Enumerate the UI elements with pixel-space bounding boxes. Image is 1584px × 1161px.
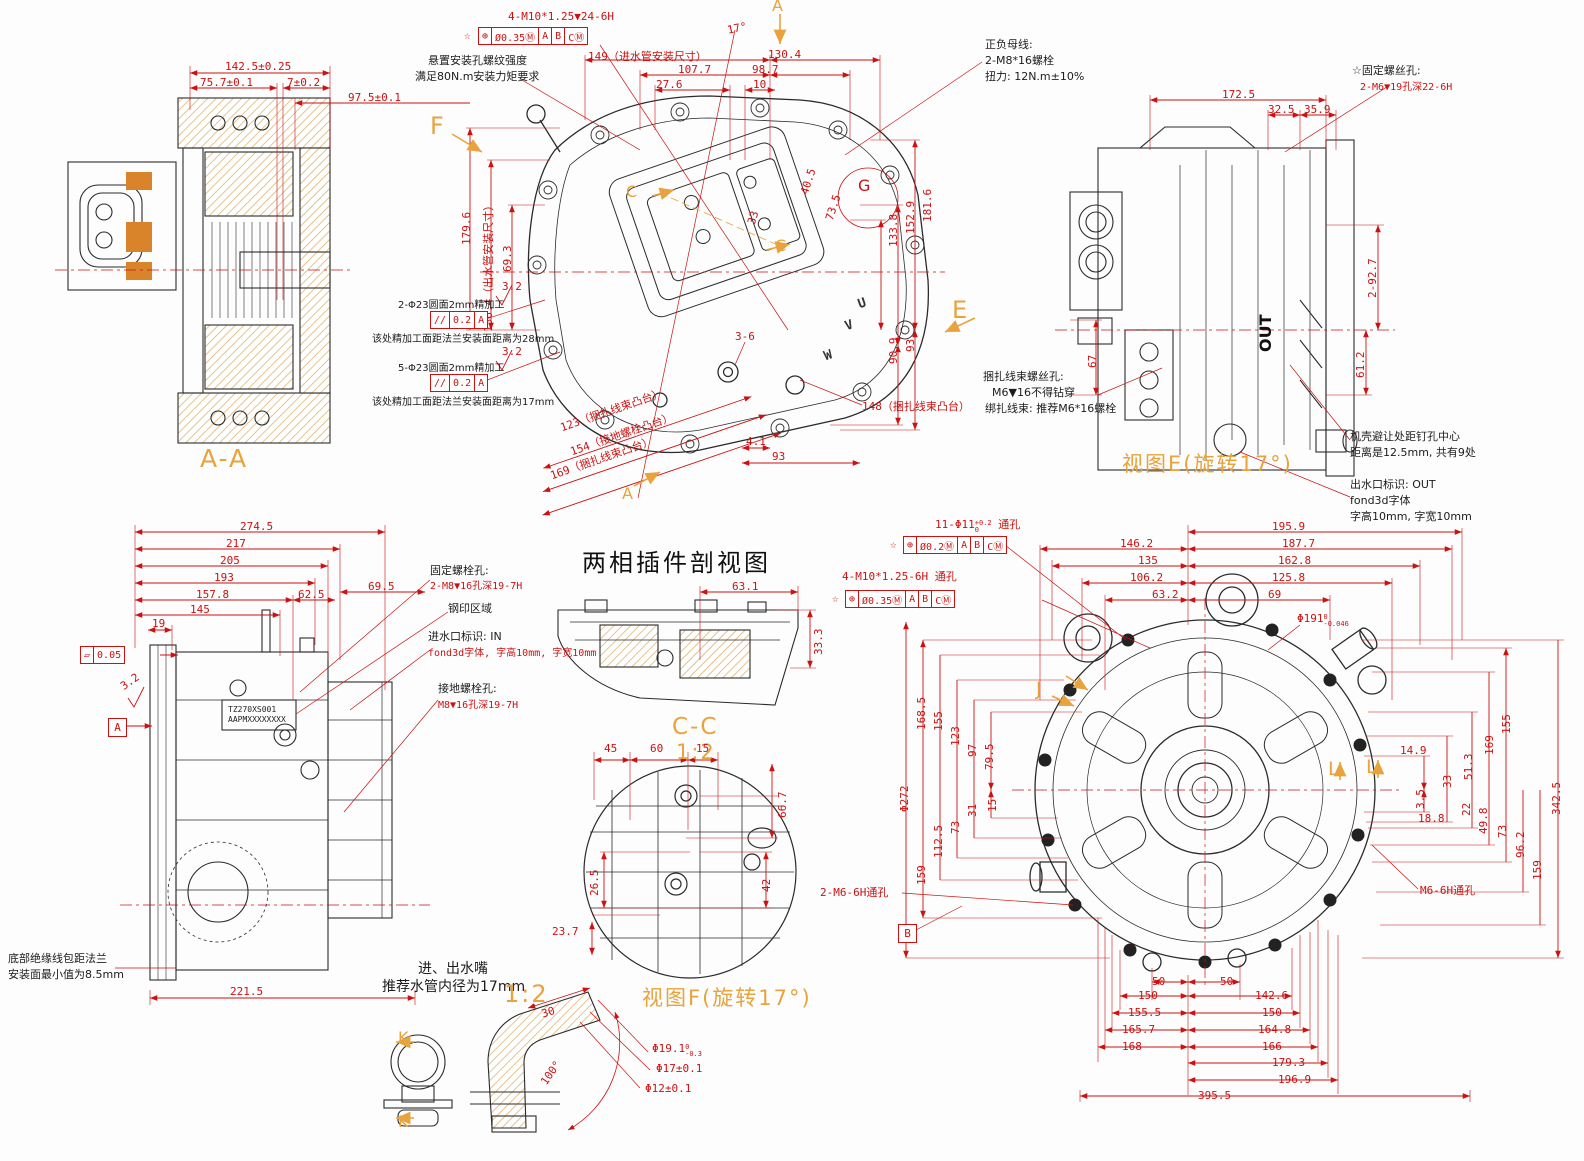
aa-dim-total: 142.5±0.25 xyxy=(225,60,291,73)
mv-par2-datum: A xyxy=(475,375,487,391)
rv-dim-272: Φ272 xyxy=(898,786,911,813)
vf-dim-15: 15 xyxy=(696,742,709,755)
engineering-drawing-sheet: 142.5±0.25 75.7±0.1 7±0.2 97.5±0.1 A-A 4… xyxy=(0,0,1584,1161)
rv-gdt2-star: ☆ xyxy=(890,538,897,551)
ve-note-fix-2: 2-M6▼19孔深22-6H xyxy=(1360,78,1452,93)
view-f-dims xyxy=(592,752,778,955)
rv-gdt3-d1: A xyxy=(906,591,919,607)
rv-dim-165-7: 165.7 xyxy=(1122,1023,1155,1036)
mv-section-a-top: A xyxy=(772,0,785,15)
sv-dim-157-8: 157.8 xyxy=(196,588,229,601)
mv-detail-g: G xyxy=(858,176,870,195)
view-main-dims xyxy=(430,30,982,515)
mv-rough-2: 3.2 xyxy=(502,345,522,358)
mv-dim-98-7: 98.7 xyxy=(752,63,779,76)
ve-note-out-1: 出水口标识: OUT xyxy=(1350,476,1436,492)
rv-dim-191-lo: -0.046 xyxy=(1324,621,1349,628)
rv-gdt3-frame: ⊕Ø0.35ⓂABCⓂ xyxy=(845,590,955,608)
sv-dim-221-5: 221.5 xyxy=(230,985,263,998)
mv-gdt-tol: Ø0.35Ⓜ xyxy=(492,28,539,44)
view-nozzle-linework xyxy=(384,992,600,1132)
ve-note-bundle-1: 捆扎线束螺丝孔: xyxy=(983,368,1064,384)
rv-view-arrow-l1: L xyxy=(1328,758,1339,780)
mv-dim-10: 10 xyxy=(753,78,766,91)
ve-dim-67: 67 xyxy=(1086,355,1099,368)
rv-dim-112-5: 112.5 xyxy=(932,825,945,858)
mv-dim-181-6: 181.6 xyxy=(921,189,934,222)
rv-dim-155-r: 155 xyxy=(1500,714,1513,734)
ve-note-avoid-2: 距离是12.5mm, 共有9处 xyxy=(1350,444,1476,460)
sv-note-ground-1: 接地螺栓孔: xyxy=(438,680,497,696)
view-nozzle-k-arrows xyxy=(396,1042,414,1118)
rv-dim-96-2: 96.2 xyxy=(1514,832,1527,859)
sv-dim-69-5: 69.5 xyxy=(368,580,395,593)
ve-dim-35-9: 35.9 xyxy=(1304,103,1331,116)
rv-dim-125-8: 125.8 xyxy=(1272,571,1305,584)
sv-dim-217: 217 xyxy=(226,537,246,550)
rv-gdt3-star: ☆ xyxy=(832,592,839,605)
rv-dim-135: 135 xyxy=(1138,554,1158,567)
rv-note-2m6: 2-M6-6H通孔 xyxy=(820,884,888,900)
mv-parallel-frame-2: //0.2A xyxy=(430,374,488,392)
rv-gdt3-d3: CⓂ xyxy=(932,591,954,607)
mv-dim-152-9: 152.9 xyxy=(904,201,917,234)
sv-note-in-1: 进水口标识: IN xyxy=(428,628,502,644)
sv-note-fix-1: 固定螺栓孔: xyxy=(430,562,489,578)
vf-view-label: 视图F(旋转17°) xyxy=(642,982,812,1012)
mv-dim-3-6: 3-6 xyxy=(735,330,755,343)
rv-dim-50a: 50 xyxy=(1152,975,1165,988)
nz-k-top: K xyxy=(398,1028,409,1047)
aa-view-label: A-A xyxy=(200,444,248,473)
view-side-linework xyxy=(150,610,392,980)
rv-dim-162-8: 162.8 xyxy=(1278,554,1311,567)
mv-section-c2: C xyxy=(775,236,786,255)
rv-dim-191: Φ1910-0.046 xyxy=(1297,612,1349,628)
sv-dim-193: 193 xyxy=(214,571,234,584)
sv-flat-sym: ▱ xyxy=(81,647,94,663)
rv-dim-33: 33 xyxy=(1441,775,1454,788)
rv-dim-155-l: 155 xyxy=(932,711,945,731)
rv-dim-191-base: Φ191 xyxy=(1297,612,1324,625)
rv-gdt2-d2: B xyxy=(971,537,984,553)
mv-gdt-d3: CⓂ xyxy=(565,28,587,44)
rv-dim-106-2: 106.2 xyxy=(1130,571,1163,584)
rv-dim-168-5: 168.5 xyxy=(915,697,928,730)
rv-dim-50b: 50 xyxy=(1220,975,1233,988)
vf-dim-23-7: 23.7 xyxy=(552,925,579,938)
rv-dim-69: 69 xyxy=(1268,588,1281,601)
ve-dim-61-2: 61.2 xyxy=(1354,352,1367,379)
mv-note-mach1b: 该处精加工面距法兰安装面距离为28mm xyxy=(372,330,554,345)
nz-dim-12: Φ12±0.1 xyxy=(645,1082,691,1095)
sv-dim-205: 205 xyxy=(220,554,240,567)
rv-dim-195-9: 195.9 xyxy=(1272,520,1305,533)
mv-dim-27-6: 27.6 xyxy=(656,78,683,91)
mv-gdt-d1: A xyxy=(539,28,552,44)
rv-note-4holes: 4-M10*1.25-6H 通孔 xyxy=(842,568,957,584)
rv-dim-166: 166 xyxy=(1262,1040,1282,1053)
ve-dim-2-92-7: 2-92.7 xyxy=(1366,258,1379,298)
ve-note-fix-1: ☆固定螺丝孔: xyxy=(1352,62,1421,78)
rv-datum-b-letter: B xyxy=(904,927,911,940)
sv-flat-tol: 0.05 xyxy=(94,647,124,663)
mv-note-suspension-1: 悬置安装孔螺纹强度 xyxy=(428,52,527,68)
rv-dim-155-5: 155.5 xyxy=(1128,1006,1161,1019)
sv-note-bottom-2: 安装面最小值为8.5mm xyxy=(8,966,124,982)
nz-dim-19-1-lo: -0.3 xyxy=(685,1051,702,1058)
rv-dim-3-5: 3.5 xyxy=(1414,789,1427,809)
mv-note-busbar-3: 扭力: 12N.m±10% xyxy=(985,68,1084,84)
mv-gdt-frame: ⊕Ø0.35ⓂABCⓂ xyxy=(478,27,588,45)
rv-gdt3-d2: B xyxy=(919,591,932,607)
mv-gdt-star: ☆ xyxy=(464,29,471,42)
mv-note-busbar-1: 正负母线: xyxy=(985,36,1033,52)
rv-dim-31: 31 xyxy=(966,804,979,817)
rv-dim-142-6: 142.6 xyxy=(1255,989,1288,1002)
sv-nameplate-line1: TZ270XS001 xyxy=(228,705,276,714)
mv-dim-water-in: 149（进水管安装尺寸） xyxy=(588,48,707,64)
rv-dim-179-3: 179.3 xyxy=(1272,1056,1305,1069)
mv-section-a-bottom: A xyxy=(622,484,635,503)
rv-dim-164-8: 164.8 xyxy=(1258,1023,1291,1036)
rv-gdt2-d3: CⓂ xyxy=(984,537,1006,553)
nz-dim-17: Φ17±0.1 xyxy=(656,1062,702,1075)
mv-note-mach2b: 该处精加工面距法兰安装面距离为17mm xyxy=(372,393,554,408)
rv-dim-14-9: 14.9 xyxy=(1400,744,1427,757)
rv-dim-123: 123 xyxy=(949,726,962,746)
mv-view-arrow-f: F xyxy=(430,112,446,140)
sv-note-in-2: fond3d字体, 字高10mm, 字宽10mm xyxy=(428,644,596,659)
cc-dim-33-3: 33.3 xyxy=(812,629,825,656)
mv-dim-boss148: 148（捆扎线束凸台） xyxy=(862,398,970,414)
mv-note-suspension-2: 满足80N.m安装力矩要求 xyxy=(415,68,539,84)
aa-dim-right: 7±0.2 xyxy=(287,76,320,89)
aa-dim-depth: 97.5±0.1 xyxy=(348,91,401,104)
rv-dim-150b: 150 xyxy=(1262,1006,1282,1019)
rv-dim-73-r: 73 xyxy=(1496,825,1509,838)
rv-gdt2-frame: ⊕Ø0.2ⓂABCⓂ xyxy=(903,536,1007,554)
rv-datum-b: B xyxy=(898,924,917,943)
view-f-linework xyxy=(584,766,796,978)
rv-gdt2-tol: Ø0.2Ⓜ xyxy=(917,537,958,553)
ve-dim-172-5: 172.5 xyxy=(1222,88,1255,101)
nz-scale: 1:2 xyxy=(504,980,549,1008)
rv-gdt3-sym: ⊕ xyxy=(846,591,859,607)
vf-dim-26-5: 26.5 xyxy=(588,870,601,897)
rv-dim-146-2: 146.2 xyxy=(1120,537,1153,550)
sv-note-ground-2: M8▼16孔深19-7H xyxy=(438,696,518,711)
rv-dim-18-8: 18.8 xyxy=(1418,812,1445,825)
nz-dim-19-1-base: Φ19.1 xyxy=(652,1042,685,1055)
mv-dim-69-3: 69.3 xyxy=(501,246,514,273)
rv-dim-73-l: 73 xyxy=(949,821,962,834)
rv-gdt2-sym: ⊕ xyxy=(904,537,917,553)
mv-gdt-d2: B xyxy=(552,28,565,44)
nz-k-bottom: K xyxy=(398,1112,409,1131)
mv-section-c1: C xyxy=(626,182,637,201)
rv-dim-79-5: 79.5 xyxy=(983,744,996,771)
ve-note-out-3: 字高10mm, 字宽10mm xyxy=(1350,508,1472,524)
mv-dim-93-right: 93 xyxy=(904,339,917,352)
mv-par2-sym: // xyxy=(431,375,450,391)
rv-dim-150a: 150 xyxy=(1138,989,1158,1002)
mv-rough-1: 3.2 xyxy=(502,280,522,293)
sv-dim-274-5: 274.5 xyxy=(240,520,273,533)
cc-section-label: C-C xyxy=(672,714,718,740)
sv-note-bottom-1: 底部绝缘线包距法兰 xyxy=(8,950,107,966)
rv-note-11holes: 11-Φ11+0.20 通孔 xyxy=(935,516,1020,534)
ve-note-avoid-1: 机壳避让处距钉孔中心 xyxy=(1350,428,1460,444)
rv-dim-395-5: 395.5 xyxy=(1198,1089,1231,1102)
rv-gdt3-tol: Ø0.35Ⓜ xyxy=(859,591,906,607)
rv-dim-342-5: 342.5 xyxy=(1550,782,1563,815)
aa-dim-left: 75.7±0.1 xyxy=(200,76,253,89)
rv-11holes-lo: 0 xyxy=(975,527,992,534)
rv-dim-159-l: 159 xyxy=(915,865,928,885)
rv-dim-63-2: 63.2 xyxy=(1152,588,1179,601)
sv-note-stamp: 钢印区域 xyxy=(448,600,492,616)
mv-par2-tol: 0.2 xyxy=(450,375,475,391)
rv-dim-196-9: 196.9 xyxy=(1278,1073,1311,1086)
vf-dim-42: 42 xyxy=(760,879,773,892)
ve-note-bundle-2: M6▼16不得钻穿 xyxy=(992,384,1075,400)
rv-dim-97: 97 xyxy=(966,744,979,757)
rv-dim-187-7: 187.7 xyxy=(1282,537,1315,550)
sv-nameplate-line2: AAPMXXXXXXXX xyxy=(228,715,286,724)
rv-dim-169: 169 xyxy=(1483,735,1496,755)
cc-title: 两相插件剖视图 xyxy=(582,543,771,578)
rv-note-m6: M6-6H通孔 xyxy=(1420,882,1475,898)
sv-dim-62-5: 62.5 xyxy=(298,588,325,601)
mv-dim-4-1: 4.1 xyxy=(746,435,766,448)
rv-gdt2-d1: A xyxy=(958,537,971,553)
view-side-dims xyxy=(115,525,448,1005)
view-aa-linework xyxy=(68,98,330,443)
rv-view-arrow-l2: L xyxy=(1366,756,1377,778)
mv-note-mach2a: 5-Φ23圆面2mm精加工 xyxy=(398,359,504,374)
ve-dim-32-5: 32.5 xyxy=(1268,103,1295,116)
cc-dim-63-1: 63.1 xyxy=(732,580,759,593)
sv-dim-145: 145 xyxy=(190,603,210,616)
ve-out-mark: OUT xyxy=(1256,314,1275,352)
mv-dim-93-bottom: 93 xyxy=(772,450,785,463)
rv-dim-159-r: 159 xyxy=(1531,860,1544,880)
vf-dim-66-7: 66.7 xyxy=(776,792,789,819)
mv-dim-130-4: 130.4 xyxy=(768,48,801,61)
nz-dim-19-1: Φ19.10-0.3 xyxy=(652,1042,702,1058)
mv-par1-datum: A xyxy=(475,312,487,328)
sv-dim-19: 19 xyxy=(152,617,165,630)
nz-note-1: 进、出水嘴 xyxy=(418,958,488,978)
ve-note-out-2: fond3d字体 xyxy=(1350,492,1411,508)
sv-note-fix-2: 2-M8▼16孔深19-7H xyxy=(430,577,522,592)
sv-datum-a-letter: A xyxy=(114,721,121,734)
sv-datum-a: A xyxy=(108,718,127,737)
mv-par1-tol: 0.2 xyxy=(450,312,475,328)
mv-gdt-sym: ⊕ xyxy=(479,28,492,44)
mv-dim-90-9: 90.9 xyxy=(887,338,900,365)
mv-dim-107-7: 107.7 xyxy=(678,63,711,76)
mv-parallel-frame-1: //0.2A xyxy=(430,311,488,329)
mv-note-busbar-2: 2-M8*16螺栓 xyxy=(985,52,1054,68)
ve-note-bundle-3: 绑扎线束: 推荐M6*16螺栓 xyxy=(985,400,1116,416)
mv-dim-133-8: 133.8 xyxy=(887,214,900,247)
mv-note-mach1a: 2-Φ23圆面2mm精加工 xyxy=(398,296,504,311)
rv-dim-22: 22 xyxy=(1460,803,1473,816)
rv-11holes-suffix: 通孔 xyxy=(998,518,1020,531)
rv-11holes-base: 11-Φ11 xyxy=(935,518,975,531)
mv-par1-sym: // xyxy=(431,312,450,328)
rv-dim-15: 15 xyxy=(986,799,999,812)
mv-dim-179-6: 179.6 xyxy=(460,212,473,245)
vf-dim-60: 60 xyxy=(650,742,663,755)
rv-dim-168: 168 xyxy=(1122,1040,1142,1053)
sv-flatness-frame: ▱0.05 xyxy=(80,646,125,664)
view-e-linework xyxy=(1070,127,1357,476)
rv-dim-49-8: 49.8 xyxy=(1477,808,1490,835)
mv-view-arrow-e: E xyxy=(952,296,969,324)
vf-dim-45: 45 xyxy=(604,742,617,755)
rv-view-arrow-j: J xyxy=(1036,678,1042,700)
ve-view-label: 视图E(旋转17°) xyxy=(1122,448,1293,478)
rv-dim-51-3: 51.3 xyxy=(1462,754,1475,781)
mv-thread-spec: 4-M10*1.25▼24-6H xyxy=(508,10,614,23)
